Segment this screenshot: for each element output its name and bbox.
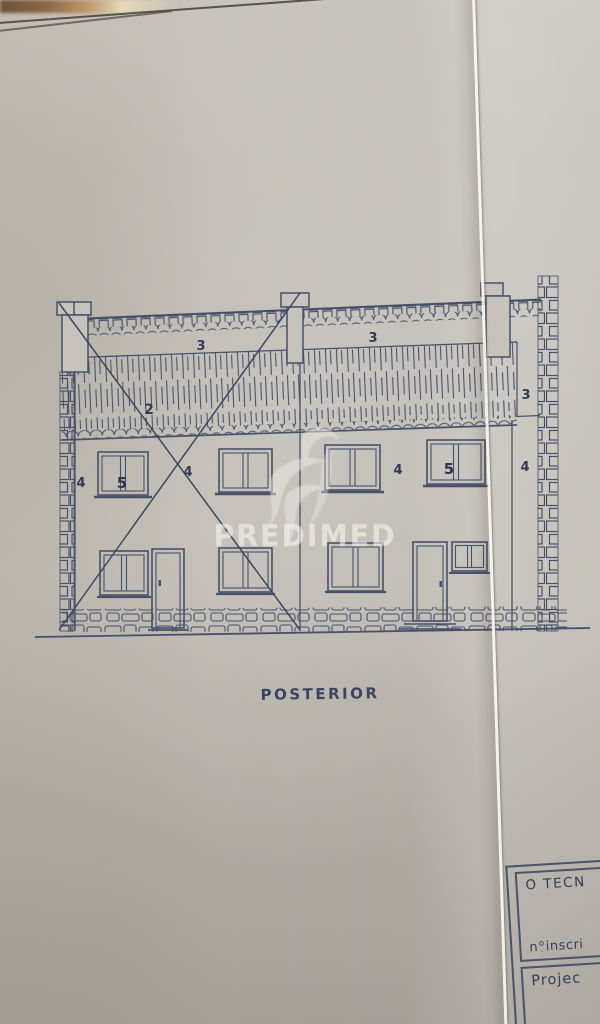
watermark-text: PREDIMED xyxy=(205,519,405,554)
label-roof-end: 3 xyxy=(521,388,530,403)
scanned-page: 3 3 2 3 4 5 4 4 5 4 PREDIMED POSTERIOR O… xyxy=(0,0,600,1024)
label-tile-band: 2 xyxy=(144,402,154,418)
label-wall-right-b: 4 xyxy=(520,460,529,475)
title-block-cell-project: Projec xyxy=(521,959,600,1024)
foundation xyxy=(35,606,590,637)
label-wall-left-b: 4 xyxy=(183,465,192,480)
label-roof-left: 3 xyxy=(196,339,205,354)
label-wall-right-a: 4 xyxy=(393,463,402,478)
label-window-left: 5 xyxy=(117,474,127,492)
label-roof-right: 3 xyxy=(368,331,377,346)
label-wall-left-a: 4 xyxy=(76,476,85,491)
label-window-right: 5 xyxy=(444,460,454,478)
door-knob xyxy=(440,581,443,587)
project-label: Projec xyxy=(523,961,600,990)
elevation-caption: POSTERIOR xyxy=(258,684,382,704)
quoin-column-left xyxy=(60,372,74,631)
door-knob xyxy=(159,580,162,586)
window-lower-left-1 xyxy=(97,551,151,597)
title-block-cell-technician: O TECN no.inscri xyxy=(515,864,600,962)
technician-label: O TECN xyxy=(517,866,600,894)
quoin-column-right xyxy=(538,276,558,631)
title-block: O TECN no.inscri Projec xyxy=(501,853,600,1024)
title-block-table: O TECN no.inscri Projec xyxy=(515,864,600,1024)
chimney-left xyxy=(57,302,91,372)
inscription-number-label: no.inscri xyxy=(529,937,584,955)
